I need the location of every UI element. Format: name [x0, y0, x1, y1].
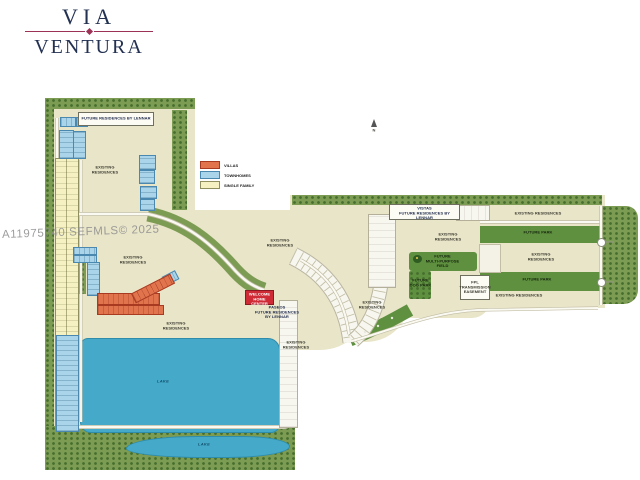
legend-row-single-family: SINGLE FAMILY	[200, 180, 344, 190]
lake-label: LAKE	[189, 442, 219, 447]
paseos-label: PASEOS FUTURE RESIDENCES BY LENNAR	[252, 305, 302, 319]
north-label: N	[364, 128, 384, 133]
future-park-label: FUTURE PARK	[517, 277, 557, 282]
townhome-block	[60, 117, 76, 127]
villas-swatch	[200, 161, 220, 169]
easement-notch	[479, 244, 501, 273]
existing-residences-label: EXISTING RESIDENCES	[156, 321, 196, 331]
existing-residences-label: EXISTING RESIDENCES	[352, 300, 392, 310]
logo-diamond-icon	[85, 28, 92, 35]
parcel-east-south-bump2	[400, 300, 490, 318]
legend-row-villas: VILLAS	[200, 160, 344, 170]
legend: VILLAS TOWNHOMES SINGLE FAMILY	[200, 160, 344, 190]
vistas-label: VISTAS FUTURE RESIDENCES BY LENNAR	[391, 206, 458, 220]
existing-residences-label: EXISTING RESIDENCES	[513, 211, 563, 216]
logo-line1: VIA	[22, 5, 156, 28]
site-plan-page: FUTURE RESIDENCES BY LENNAR VISTAS FUTUR…	[0, 0, 640, 480]
townhome-block	[59, 130, 74, 159]
future-residences-north-box: FUTURE RESIDENCES BY LENNAR	[78, 112, 154, 126]
green-edge-north	[45, 98, 195, 109]
townhome-block	[139, 155, 156, 170]
townhome-block	[87, 262, 100, 296]
green-far-east	[602, 206, 638, 304]
logo-line2: VENTURA	[22, 35, 156, 59]
single-family-swatch	[200, 181, 220, 189]
townhome-block	[73, 247, 97, 255]
logo-divider-line	[94, 31, 154, 33]
existing-residences-label: EXISTING RESIDENCES	[428, 232, 468, 242]
future-lots-band-vistas	[368, 214, 396, 288]
green-edge-west	[45, 108, 54, 432]
existing-residences-label: EXISTING RESIDENCES	[494, 293, 544, 298]
existing-residences-label: EXISTING RESIDENCES	[260, 238, 300, 248]
lake-south	[126, 436, 290, 458]
existing-residences-label: EXISTING RESIDENCES	[85, 165, 125, 175]
townhomes-swatch	[200, 171, 220, 179]
welcome-home-center-box: WELCOME HOME CENTER	[245, 290, 274, 305]
single-family-legend-label: SINGLE FAMILY	[224, 183, 284, 188]
playground-dot-icon	[416, 257, 418, 259]
townhome-block	[139, 170, 155, 184]
villas-legend-label: VILLAS	[224, 163, 284, 168]
lake-main	[80, 338, 280, 433]
townhomes-legend-label: TOWNHOMES	[224, 173, 284, 178]
future-residences-north-label: FUTURE RESIDENCES BY LENNAR	[81, 116, 151, 121]
future-park-label: FUTURE PARK	[518, 230, 558, 235]
townhome-block	[140, 186, 157, 199]
fpl-easement-label: FPL TRANSMISSION EASEMENT	[455, 280, 495, 294]
via-ventura-logo: VIA VENTURA	[22, 5, 156, 59]
townhome-block	[140, 199, 155, 211]
logo-divider-line	[25, 31, 85, 33]
existing-residences-label: EXISTING RESIDENCES	[276, 340, 316, 350]
townhome-block	[56, 335, 79, 432]
logo-divider	[25, 29, 153, 34]
entrance-marker	[597, 278, 606, 287]
villas-row	[97, 305, 164, 315]
legend-row-townhomes: TOWNHOMES	[200, 170, 344, 180]
green-edge-nw-right	[172, 110, 187, 210]
vistas-box: VISTAS FUTURE RESIDENCES BY LENNAR	[389, 204, 460, 220]
dog-park-label: FUTURE DOG PARK	[403, 278, 438, 288]
existing-residences-label: EXISTING RESIDENCES	[521, 252, 561, 262]
lake-label: LAKE	[148, 379, 178, 384]
existing-residences-label: EXISTING RESIDENCES	[113, 255, 153, 265]
future-lots-row-vistas	[456, 205, 490, 221]
fpl-easement-box: FPL TRANSMISSION EASEMENT	[460, 275, 490, 300]
north-arrow-icon	[371, 119, 377, 127]
townhome-block	[73, 131, 86, 159]
entrance-marker	[597, 238, 606, 247]
multi-purpose-field-label: FUTURE MULTI-PURPOSE FIELD	[420, 254, 465, 268]
